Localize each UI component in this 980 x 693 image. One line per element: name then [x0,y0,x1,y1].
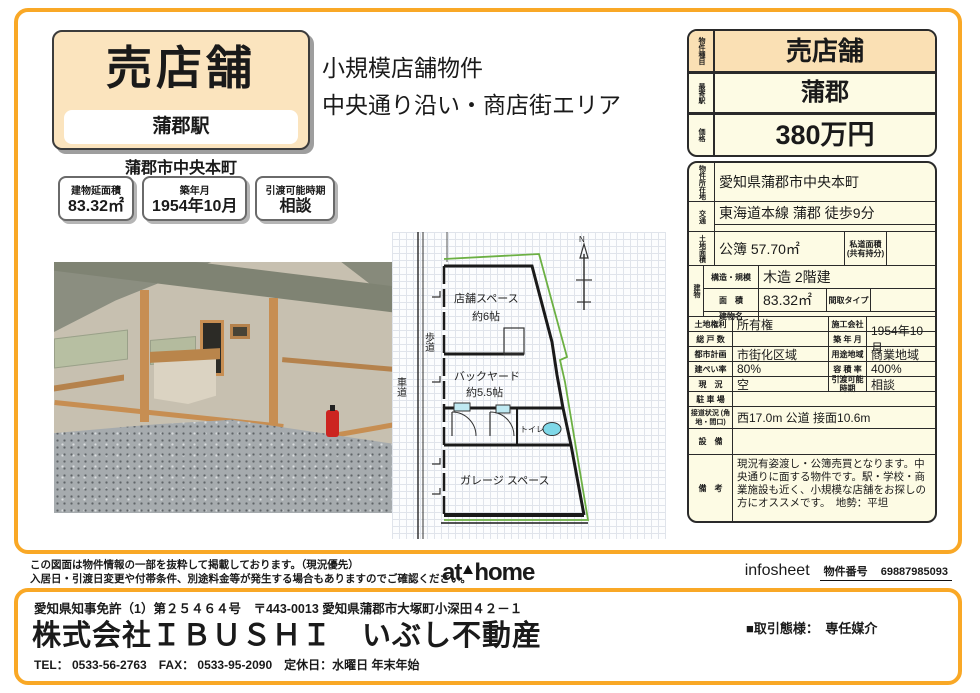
building-label: 建物 [689,266,704,316]
pair-value: 空 [733,377,829,391]
parking-label: 駐 車 場 [689,392,733,406]
backyard-label: バックヤード [454,370,520,383]
catch-copy: 小規模店舗物件 中央通り沿い・商店街エリア [322,50,621,124]
photo-window-left [54,329,128,368]
layout-type-value [871,289,935,311]
company-name: 株式会社ＩＢＵＳＨＩ いぶし不動産 [32,612,542,654]
summary-row-type: 物件種目 売店舗 [689,31,935,71]
road-contact-label: 接道状況 (角地・間口) [689,407,733,428]
fact-label: 引渡可能時期 [265,182,325,197]
location-value: 愛知県蒲郡市中央本町 [715,163,935,201]
area-value: 83.32㎡ [759,289,827,311]
catch-copy-line1: 小規模店舗物件 [322,50,621,87]
footer-strip: この図面は物件情報の一部を抜粋して掲載しております。（現況優先） 入居日・引渡日… [14,556,962,586]
fact-built-date: 築年月 1954年10月 [142,176,247,221]
land-area-value: 公簿 57.70㎡ [715,232,845,265]
sidewalk-label: 歩道 [423,331,435,352]
fact-label: 建物延面積 [68,182,124,197]
access-line1: 東海道本線 蒲郡 徒歩9分 [715,202,935,224]
pair-label: 築 年 月 [829,332,867,346]
infosheet-label: infosheet [745,562,810,580]
row-parking: 駐 車 場 [689,391,935,406]
summary-price-value: 380万円 [715,115,935,155]
pair-value: 市街化区域 [733,347,829,361]
area-label: 面 積 [704,289,759,311]
row-remarks: 備 考 現況有姿渡し・公簿売買となります。中央通りに面する物件です。駅・学校・商… [689,454,935,521]
layout-type-label: 間取タイプ [827,289,871,311]
floor-plan-drawing: N 店舗スペース 約6帖 バックヤード 約5.5帖 トイレ ガレージ スペース … [392,232,666,539]
structure-label: 構造・規模 [704,266,759,288]
pair-label: 施工会社 [829,317,867,331]
pair-row: 総 戸 数 築 年 月 1954年10月 [689,331,935,346]
row-equipment: 設 備 [689,428,935,454]
fact-value: 1954年10月 [152,197,237,216]
access-label: 交通 [689,202,715,231]
property-number-value: 69887985093 [881,566,948,578]
pair-label: 用途地域 [829,347,867,361]
pair-label: 現 況 [689,377,733,391]
equipment-label: 設 備 [689,429,733,454]
detail-table: 物件所在地 愛知県蒲郡市中央本町 交通 東海道本線 蒲郡 徒歩9分 土地面積 公… [687,161,937,523]
summary-type-value: 売店舗 [715,31,935,71]
summary-station-label: 最寄駅 [689,74,715,112]
pair-row: 現 況 空 引渡可能 時期 相談 [689,376,935,391]
fact-value: 83.32㎡ [68,197,124,216]
private-road-value [887,232,935,265]
pair-label: 引渡可能 時期 [829,377,867,391]
pair-value [733,332,829,346]
photo-small-window [230,324,250,339]
structure-value: 木造 2階建 [759,266,935,288]
company-contact: TEL： 0533-56-2763 FAX： 0533-95-2090 定休日：… [34,656,419,673]
transaction-type: ■取引態様： 専任媒介 [746,618,877,637]
road-contact-value: 西17.0m 公道 接面10.6m [733,407,935,428]
photo-wall-rail [282,357,394,372]
pair-row: 建ぺい率 80% 容 積 率 400% [689,361,935,376]
summary-station-value: 蒲郡 [715,74,935,112]
backyard-size: 約5.5帖 [466,385,503,399]
pair-label: 都市計画 [689,347,733,361]
photo-wood-post [269,298,278,426]
equipment-value [733,429,935,454]
remarks-label: 備 考 [689,455,733,521]
row-road: 接道状況 (角地・間口) 西17.0m 公道 接面10.6m [689,406,935,428]
quick-facts: 建物延面積 83.32㎡ 築年月 1954年10月 引渡可能時期 相談 [58,176,335,221]
garage-label: ガレージ スペース [460,474,550,487]
pair-value: 400% [867,362,935,376]
location-label: 物件所在地 [689,163,715,201]
station-badge: 蒲郡駅 [64,110,298,144]
land-area-label: 土地面積 [689,232,715,265]
fact-building-area: 建物延面積 83.32㎡ [58,176,134,221]
company-panel: 愛知県知事免許（1）第２５４６４号 〒443-0013 愛知県蒲郡市大塚町小深田… [14,588,962,685]
disclaimer: この図面は物件情報の一部を抜粋して掲載しております。（現況優先） 入居日・引渡日… [30,558,471,586]
athome-logo-home: home [474,559,534,587]
summary-row-price: 価格 380万円 [689,112,935,155]
photo-shelf [54,374,124,391]
parking-value [733,392,935,406]
pair-label: 総 戸 数 [689,332,733,346]
property-number: 物件番号 69887985093 [820,563,952,581]
pair-value: 所有権 [733,317,829,331]
shop-space-label: 店舗スペース [454,291,519,305]
main-flyer-panel: 売店舗 蒲郡駅 小規模店舗物件 中央通り沿い・商店街エリア 蒲郡市中央本町 建物… [14,8,962,554]
private-road-label: 私道面積 (共有持分) [845,232,887,265]
property-type-title: 売店舗 [54,32,308,104]
row-access: 交通 東海道本線 蒲郡 徒歩9分 [689,201,935,231]
summary-row-station: 最寄駅 蒲郡 [689,71,935,112]
summary-table: 物件種目 売店舗 最寄駅 蒲郡 価格 380万円 [687,29,937,157]
pair-label: 土地権利 [689,317,733,331]
summary-type-label: 物件種目 [689,31,715,71]
infosheet-block: infosheet 物件番号 69887985093 [745,562,952,581]
property-number-label: 物件番号 [824,566,868,578]
pair-value: 相談 [867,377,935,391]
toilet-label: トイレ [520,425,544,434]
catch-copy-line2: 中央通り沿い・商店街エリア [322,87,621,124]
shop-space-size: 約6帖 [472,309,500,323]
pair-value: 80% [733,362,829,376]
property-photo [54,262,396,513]
fact-value: 相談 [265,197,325,216]
pair-label: 建ぺい率 [689,362,733,376]
photo-fire-extinguisher [326,410,339,437]
property-type-banner: 売店舗 蒲郡駅 [52,30,310,150]
fact-handover: 引渡可能時期 相談 [255,176,335,221]
roadway-label: 車道 [395,376,407,397]
fact-label: 築年月 [152,182,237,197]
row-location: 物件所在地 愛知県蒲郡市中央本町 [689,163,935,201]
athome-logo: at home [442,559,534,587]
athome-house-icon [463,565,473,574]
disclaimer-line2: 入居日・引渡日変更や付帯条件、別途料金等が発生する場合もありますのでご確認くださ… [30,572,471,586]
pair-value: 1954年10月 [867,332,935,346]
summary-price-label: 価格 [689,115,715,155]
row-land-area: 土地面積 公簿 57.70㎡ 私道面積 (共有持分) [689,231,935,265]
athome-logo-at: at [442,559,461,587]
floor-plan: N 店舗スペース 約6帖 バックヤード 約5.5帖 トイレ ガレージ スペース … [392,232,666,539]
remarks-value: 現況有姿渡し・公簿売買となります。中央通りに面する物件です。駅・学校・商業施設も… [733,455,935,521]
row-building: 建物 構造・規模 木造 2階建 面 積 83.32㎡ 間取タイプ 建物名 [689,265,935,316]
photo-counter [154,358,216,404]
pair-row: 都市計画 市街化区域 用途地域 商業地域 [689,346,935,361]
disclaimer-line1: この図面は物件情報の一部を抜粋して掲載しております。（現況優先） [30,558,471,572]
north-label: N [579,235,585,244]
pair-value: 商業地域 [867,347,935,361]
pair-label: 容 積 率 [829,362,867,376]
photo-wood-post [140,290,149,422]
district-label: 蒲郡市中央本町 [52,154,310,178]
